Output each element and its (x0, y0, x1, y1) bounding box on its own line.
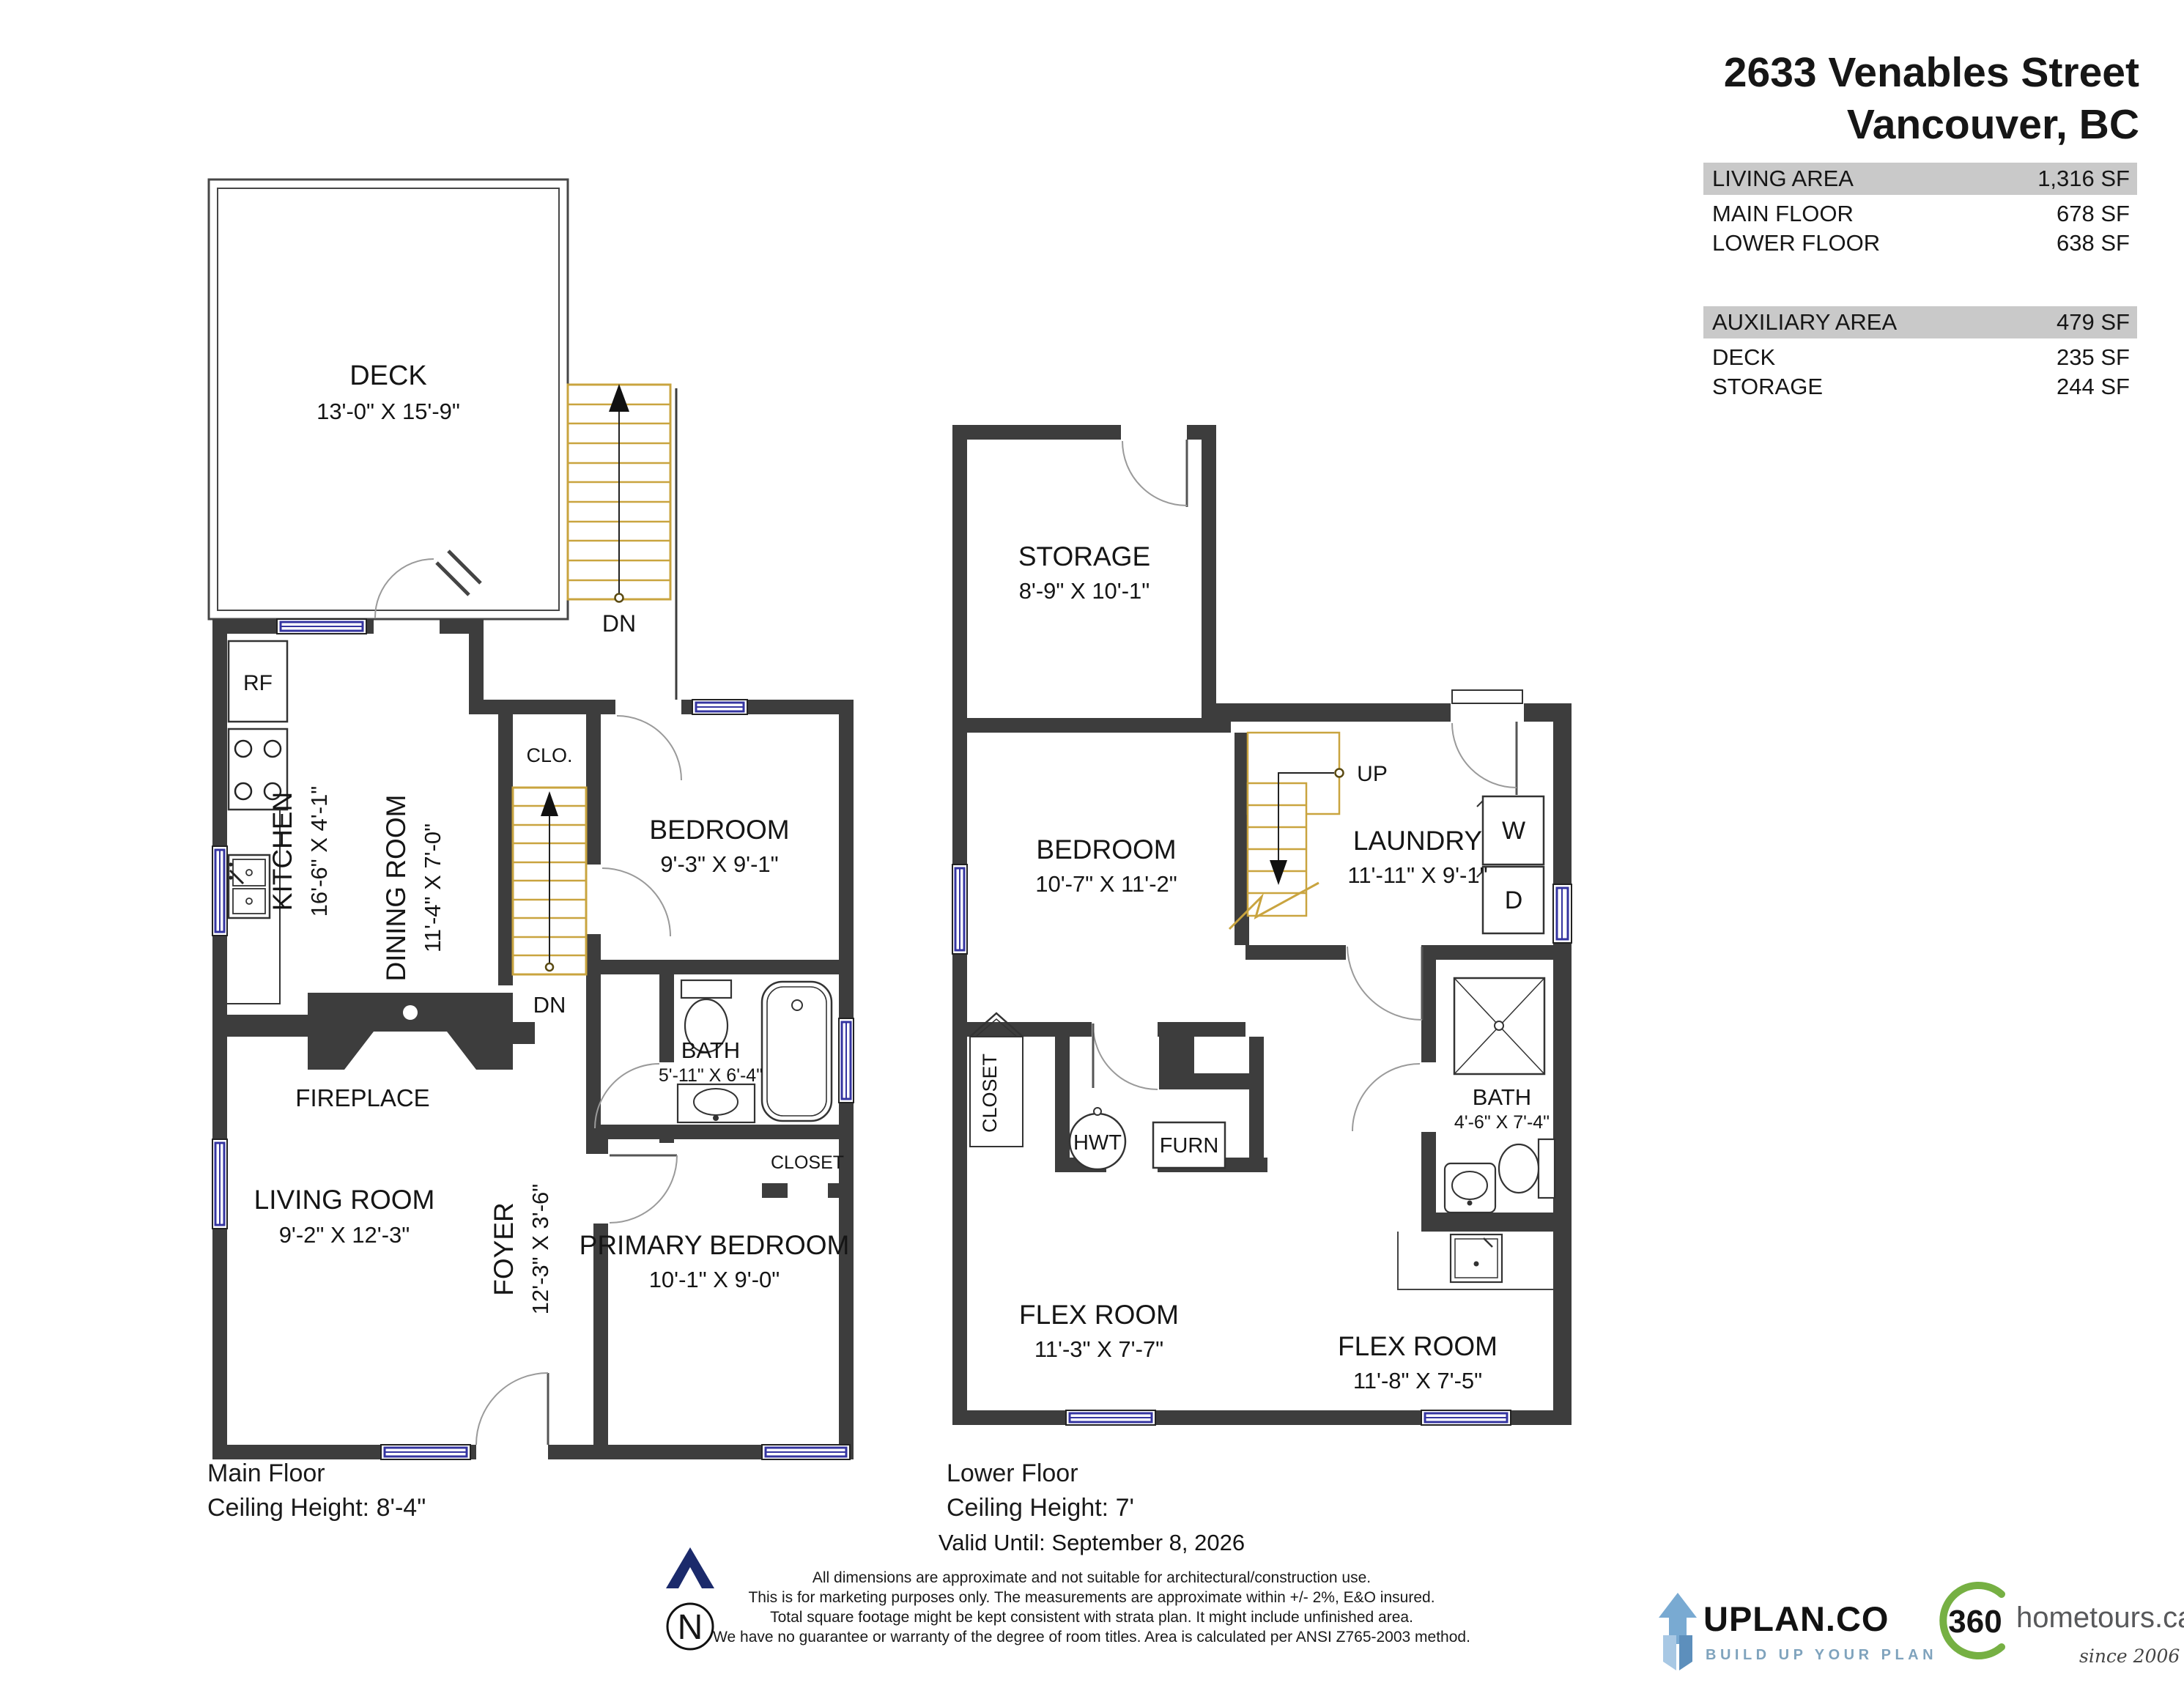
row-label: LIVING AREA (1712, 166, 1854, 192)
closet-label: CLOSET (979, 1054, 1001, 1133)
row-value: 479 SF (2057, 309, 2130, 336)
table-row-storage: STORAGE 244 SF (1703, 372, 2137, 401)
up-label: UP (1357, 762, 1388, 786)
fridge: RF (229, 641, 287, 722)
foyer-dims: 12'-3" X 3'-6" (528, 1184, 553, 1315)
up-arrow-icon (1663, 1635, 1676, 1670)
living-dims: 9'-2" X 12'-3" (279, 1222, 410, 1248)
furnace: FURN (1153, 1122, 1225, 1168)
hot-water-tank: HWT (1070, 1108, 1125, 1169)
hwt-label: HWT (1073, 1131, 1122, 1155)
primary-dims: 10'-1" X 9'-0" (649, 1267, 780, 1292)
bedroom-dims: 10'-7" X 11'-2" (1035, 871, 1177, 897)
exterior-dn-label: DN (602, 610, 636, 637)
laundry-dims: 11'-11" X 9'-1" (1347, 862, 1487, 888)
disclaimer-line: All dimensions are approximate and not s… (506, 1568, 1678, 1588)
table-row-main-floor: MAIN FLOOR 678 SF (1703, 199, 2137, 229)
floor-name: Lower Floor (947, 1456, 1134, 1491)
floorplan-page: 2633 Venables Street Vancouver, BC LIVIN… (0, 0, 2184, 1688)
uplan-logo-tagline: BUILD UP YOUR PLAN (1706, 1647, 1937, 1664)
bath-label: BATH (681, 1037, 740, 1063)
bedroom-dims: 9'-3" X 9'-1" (660, 851, 778, 877)
deck: DECK 13'-0" X 15'-9" (209, 179, 568, 619)
row-value: 678 SF (2057, 201, 2130, 227)
row-label: MAIN FLOOR (1712, 201, 1854, 227)
vanity-sink-lower (1445, 1163, 1495, 1213)
address-line2: Vancouver, BC (1724, 99, 2139, 151)
deck-label: DECK (349, 360, 427, 391)
storage-door-arc (1122, 441, 1187, 506)
kitchen-dims: 16'-6" X 4'-1" (306, 786, 332, 917)
row-value: 1,316 SF (2037, 166, 2130, 192)
lower-entry-door-arc (1452, 723, 1517, 788)
bath-dims: 5'-11" X 6'-4" (659, 1065, 763, 1086)
deck-dims: 13'-0" X 15'-9" (317, 399, 460, 424)
property-address: 2633 Venables Street Vancouver, BC (1724, 47, 2139, 150)
floor-name: Main Floor (207, 1456, 426, 1491)
flex2-dims: 11'-8" X 7'-5" (1353, 1368, 1482, 1393)
uplan-logo-name: UPLAN.CO (1703, 1599, 1889, 1639)
disclaimer-line: This is for marketing purposes only. The… (506, 1588, 1678, 1607)
tours-since-text: since 2006 (2079, 1646, 2180, 1667)
row-label: DECK (1712, 344, 1775, 371)
dryer-label: D (1505, 886, 1523, 914)
window-kitchen-left (212, 846, 227, 936)
disclaimer-text: All dimensions are approximate and not s… (506, 1568, 1678, 1647)
ceiling-height: Ceiling Height: 8'-4" (207, 1491, 426, 1525)
fridge-label: RF (243, 671, 273, 695)
vanity-sink-main (678, 1084, 755, 1122)
hall-door-arc (1347, 947, 1422, 1020)
bedroom-label: BEDROOM (1036, 834, 1176, 865)
ceiling-height: Ceiling Height: 7' (947, 1491, 1134, 1525)
bath-label: BATH (1473, 1084, 1531, 1110)
bedroom-door-arc (602, 868, 670, 936)
table-row-lower-floor: LOWER FLOOR 638 SF (1703, 229, 2137, 258)
row-value: 235 SF (2057, 344, 2130, 371)
primary-label: PRIMARY BEDROOM (580, 1230, 850, 1260)
exterior-stairs: DN (568, 384, 676, 700)
closet-label: CLOSET (771, 1152, 844, 1173)
up-arrow-icon (1679, 1635, 1692, 1670)
clo-label: CLO. (526, 744, 572, 766)
window-living-left (212, 1139, 227, 1229)
window-primary-bottom (762, 1445, 850, 1459)
main-floor-plan: DECK 13'-0" X 15'-9" DN (198, 169, 872, 1546)
table-row-living-area: LIVING AREA 1,316 SF (1703, 163, 2137, 195)
bedroom-door-arc (1093, 1025, 1158, 1089)
kitchen-label: KITCHEN (267, 792, 297, 911)
shower (1454, 978, 1544, 1074)
primary-door-arc (610, 1155, 677, 1223)
tours-domain-text: hometours.ca (2016, 1602, 2184, 1635)
bar-sink (1451, 1234, 1502, 1282)
storage-dims: 8'-9" X 10'-1" (1019, 578, 1150, 604)
bath-door-arc (595, 1064, 659, 1128)
window-flex1-bottom (1066, 1410, 1155, 1425)
living-label: LIVING ROOM (254, 1185, 435, 1215)
disclaimer-line: We have no guarantee or warranty of the … (506, 1627, 1678, 1647)
washer-label: W (1502, 817, 1525, 845)
row-label: STORAGE (1712, 374, 1823, 400)
tours-360-number: 360 (1948, 1604, 2002, 1640)
window-bedroom-left (952, 865, 967, 954)
interior-dn-label: DN (533, 992, 566, 1018)
lower-floor-plan: UP W D CLOSET HWT FURN (938, 410, 1597, 1465)
interior-stairs-main: DN (513, 788, 586, 1018)
flex1-label: FLEX ROOM (1019, 1300, 1179, 1330)
uplan-logo-icon (1657, 1591, 1698, 1672)
row-value: 244 SF (2057, 374, 2130, 400)
laundry-label: LAUNDRY (1353, 826, 1482, 856)
tours-360-logo: 360 (1931, 1577, 2019, 1665)
hall-door-arc (617, 716, 681, 780)
entry-door-arc (476, 1373, 548, 1445)
toilet-lower (1499, 1139, 1555, 1198)
foyer-label: FOYER (489, 1202, 519, 1295)
window-bedroom-top (692, 700, 747, 714)
window-laundry-right (1553, 884, 1572, 943)
bath-dims: 4'-6" X 7'-4" (1454, 1112, 1550, 1133)
furn-label: FURN (1160, 1134, 1219, 1158)
address-line1: 2633 Venables Street (1724, 47, 2139, 99)
dining-dims: 11'-4" X 7'-0" (420, 823, 445, 952)
row-label: AUXILIARY AREA (1712, 309, 1897, 336)
fireplace-label: FIREPLACE (295, 1084, 429, 1111)
lower-floor-title: Lower Floor Ceiling Height: 7' (947, 1456, 1134, 1525)
kitchen-sink (229, 855, 270, 918)
bathtub (762, 982, 832, 1121)
dining-label: DINING ROOM (381, 795, 411, 982)
disclaimer-line: Total square footage might be kept consi… (506, 1607, 1678, 1627)
bath-door-arc (1352, 1064, 1420, 1131)
washer: W (1477, 796, 1544, 865)
row-label: LOWER FLOOR (1712, 230, 1880, 256)
window-kitchen-top (277, 619, 366, 634)
entry-sill (1452, 690, 1522, 703)
window-flex2-bottom (1421, 1410, 1511, 1425)
main-floor-title: Main Floor Ceiling Height: 8'-4" (207, 1456, 426, 1525)
bedroom-label: BEDROOM (649, 815, 789, 845)
table-row-deck: DECK 235 SF (1703, 343, 2137, 372)
window-bath-right (839, 1018, 854, 1103)
flex2-label: FLEX ROOM (1338, 1331, 1498, 1361)
flex1-dims: 11'-3" X 7'-7" (1034, 1336, 1163, 1362)
row-value: 638 SF (2057, 230, 2130, 256)
storage-label: STORAGE (1018, 541, 1150, 571)
table-row-auxiliary-area: AUXILIARY AREA 479 SF (1703, 306, 2137, 338)
